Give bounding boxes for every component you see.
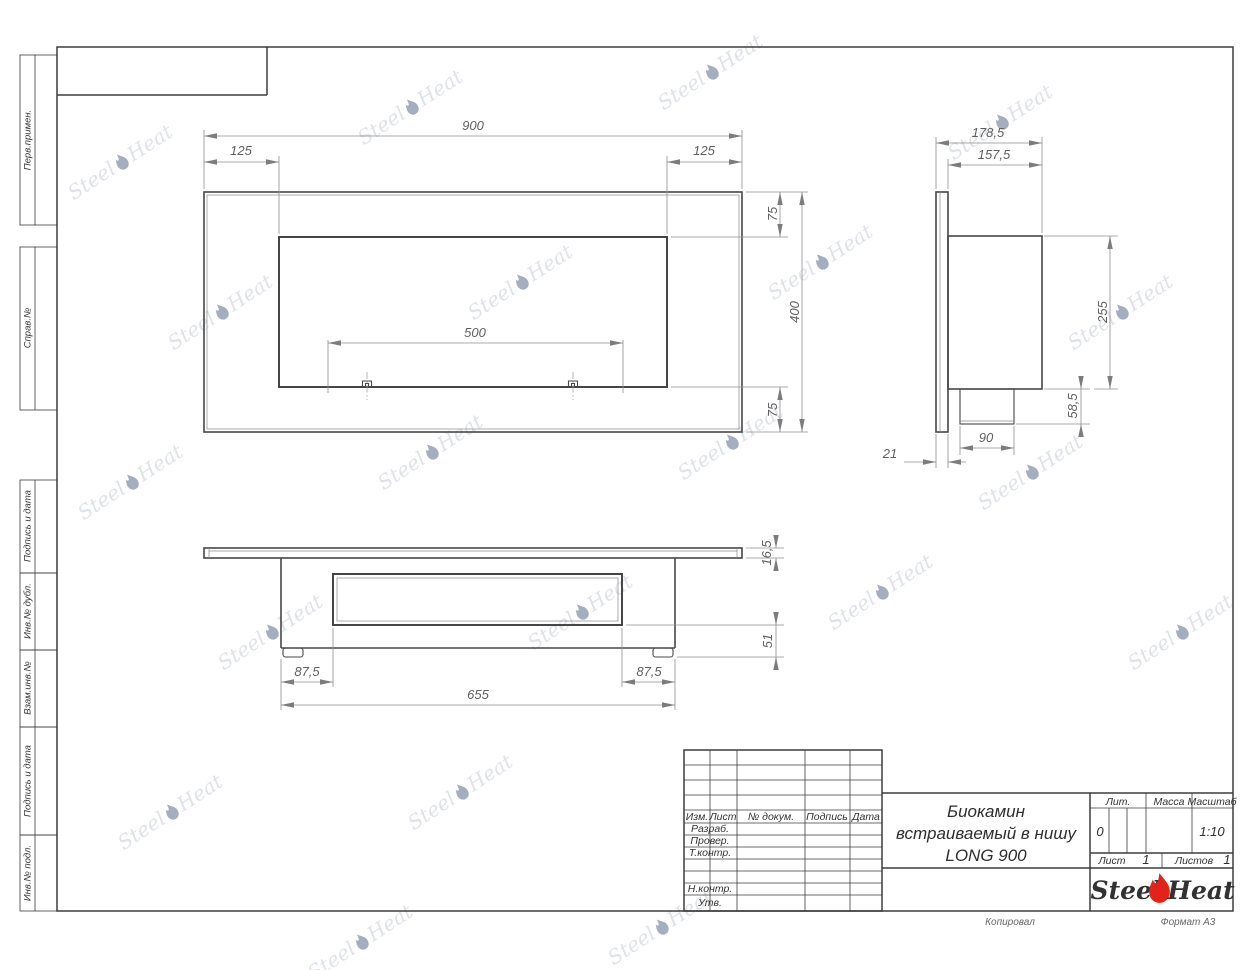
sidebar-box-inv-dubl: Инв.№ дубл. <box>20 573 57 650</box>
dim-900: 900 <box>462 118 484 133</box>
logo-heat-text: Heat <box>1166 876 1235 905</box>
sidebar-label: Взам.инв.№ <box>23 661 34 714</box>
dim-125-left: 125 <box>230 143 252 158</box>
sheets-label: Листов <box>1174 855 1214 867</box>
copied-note: Копировал <box>985 917 1035 928</box>
col-date: Дата <box>851 811 880 823</box>
doc-title-line3: LONG 900 <box>945 846 1027 865</box>
side-dimensions: 178,5 157,5 255 58,5 90 <box>882 125 1118 468</box>
dim-75-top: 75 <box>765 206 780 221</box>
designation-box <box>57 47 267 95</box>
lit-value: 0 <box>1096 824 1104 839</box>
sheet-label: Лист <box>1097 855 1125 867</box>
col-izm: Изм. <box>686 811 708 823</box>
dim-255: 255 <box>1095 300 1110 323</box>
dim-87-5-left: 87,5 <box>294 664 320 679</box>
sidebar-box-vzam-inv: Взам.инв.№ <box>20 650 57 727</box>
drawing-sheet: SteelHeat SteelHeat SteelHeat SteelHeat … <box>0 0 1255 970</box>
burner-clip <box>363 372 372 400</box>
dim-157-5: 157,5 <box>978 147 1011 162</box>
sidebar-box-podpis-data-1: Подпись и дата <box>20 480 57 573</box>
sidebar-label: Инв.№ дубл. <box>23 583 34 639</box>
sheet-frame <box>57 47 1233 911</box>
sidebar-label: Справ.№ <box>23 308 34 349</box>
burner-clip <box>569 372 578 400</box>
dim-21: 21 <box>882 446 897 461</box>
doc-title-line2: встраиваемый в нишу <box>896 824 1077 843</box>
front-view: 900 125 125 500 75 400 75 <box>204 118 808 432</box>
front-dimensions: 900 125 125 500 75 400 75 <box>204 118 808 432</box>
side-view: 178,5 157,5 255 58,5 90 <box>882 125 1118 468</box>
format-note: Формат А3 <box>1161 917 1216 928</box>
col-sign: Подпись <box>806 811 848 823</box>
row-nkontr: Н.контр. <box>688 883 732 895</box>
dim-75-bottom: 75 <box>765 402 780 417</box>
doc-title-line1: Биокамин <box>947 802 1026 821</box>
scale-label: Масштаб <box>1187 796 1237 808</box>
row-prover: Провер. <box>690 835 729 847</box>
dim-655: 655 <box>467 687 489 702</box>
sidebar-label: Перв.примен. <box>23 110 34 171</box>
sidebar-box-perv-primen: Перв.примен. <box>20 55 57 225</box>
steelheat-logo: Steel Heat <box>1091 873 1236 905</box>
col-list: Лист <box>708 811 736 823</box>
mass-label: Масса <box>1153 796 1184 808</box>
sheets-number: 1 <box>1223 852 1230 867</box>
sidebar: Перв.примен. Справ.№ Подпись и дата Инв.… <box>20 55 57 911</box>
row-utv: Утв. <box>697 897 722 909</box>
dim-178-5: 178,5 <box>972 125 1005 140</box>
sidebar-box-sprav-n: Справ.№ <box>20 247 57 410</box>
sidebar-label: Подпись и дата <box>23 745 34 817</box>
col-doc: № докум. <box>748 811 794 823</box>
sheet-number: 1 <box>1142 852 1149 867</box>
bottom-dimensions: 87,5 87,5 655 16,5 51 <box>281 536 784 710</box>
row-razrab: Разраб. <box>691 823 729 835</box>
dim-500: 500 <box>464 325 486 340</box>
scale-value: 1:10 <box>1199 824 1225 839</box>
bottom-view: 87,5 87,5 655 16,5 51 <box>204 536 784 710</box>
dim-90: 90 <box>979 430 994 445</box>
sidebar-box-podpis-data-2: Подпись и дата <box>20 727 57 835</box>
dim-125-right: 125 <box>693 143 715 158</box>
title-block: Изм. Лист № докум. Подпись Дата Разраб. … <box>684 750 1238 928</box>
sidebar-box-inv-podl: Инв.№ подл. <box>20 835 57 911</box>
sidebar-label: Инв.№ подл. <box>23 845 34 901</box>
lit-label: Лит. <box>1105 796 1131 808</box>
sidebar-label: Подпись и дата <box>23 490 34 562</box>
dim-16-5: 16,5 <box>759 540 774 566</box>
dim-87-5-right: 87,5 <box>636 664 662 679</box>
dim-400: 400 <box>787 300 802 322</box>
dim-58-5: 58,5 <box>1065 393 1080 419</box>
row-tkontr: Т.контр. <box>689 847 731 859</box>
dim-51: 51 <box>760 634 775 648</box>
